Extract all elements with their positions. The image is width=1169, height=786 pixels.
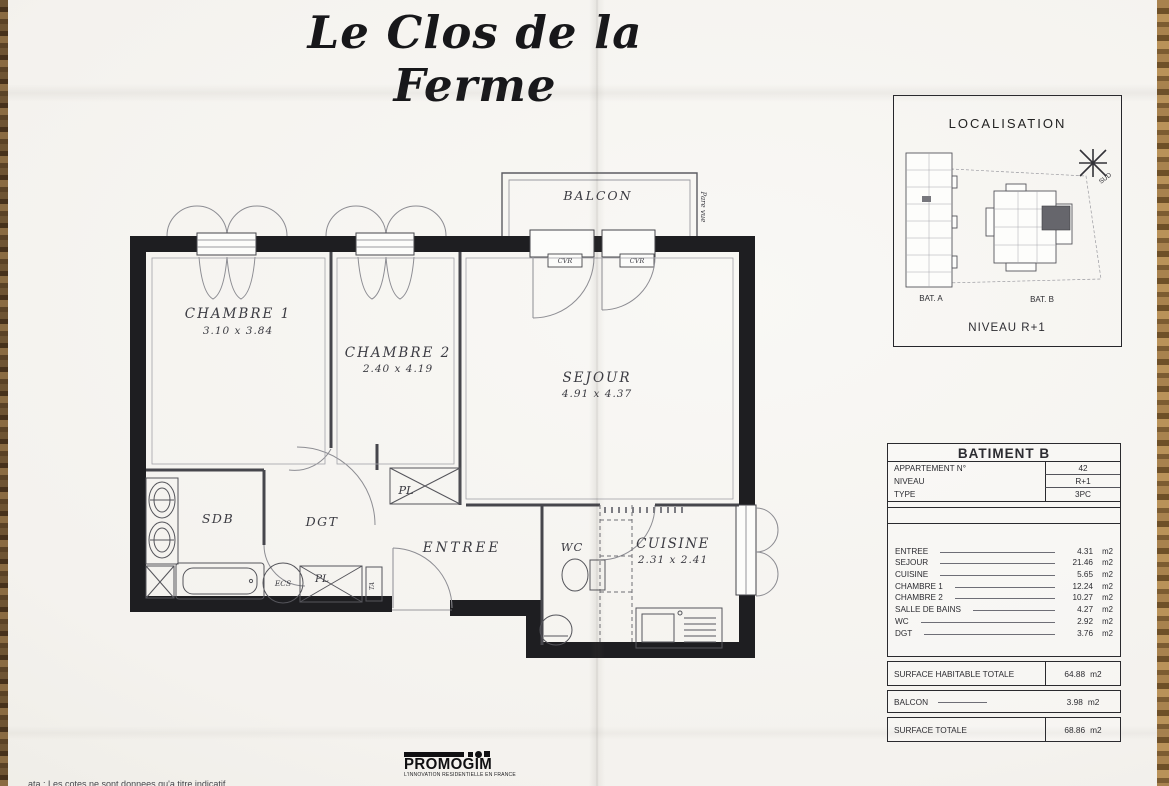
promogim-logo: PROMOGIM L'INNOVATION RESIDENTIELLE EN F… (404, 751, 500, 778)
room-area: 4.31 (1063, 547, 1093, 556)
room-area: 4.27 (1063, 605, 1093, 614)
batiment-b-table: BATIMENT B APPARTEMENT N° 42 NIVEAU R+1 … (887, 443, 1121, 742)
room-label-sdb: SDB (202, 511, 234, 526)
compass-icon (1079, 149, 1107, 177)
area-unit: m2 (1093, 593, 1113, 602)
total-number: 64.88 (1064, 669, 1085, 679)
bat-a-outline (906, 153, 957, 287)
surface-habitable-row: SURFACE HABITABLE TOTALE 64.88m2 (887, 661, 1121, 686)
room-name: DGT (895, 629, 912, 638)
brand-name: PROMOGIM (404, 757, 500, 773)
room-label-cuisine: CUISINE (636, 536, 710, 552)
area-unit: m2 (1093, 570, 1113, 579)
room-name: CUISINE (895, 570, 928, 579)
room-dims-cuisine: 2.31 x 2.41 (637, 554, 708, 566)
leader-line (940, 552, 1055, 553)
area-unit: m2 (1093, 605, 1113, 614)
scanned-floorplan-page: Le Clos de la Ferme (0, 0, 1169, 786)
room-label-chambre2: CHAMBRE 2 (345, 345, 452, 361)
info-label: APPARTEMENT N° (888, 464, 1045, 473)
table-row: CHAMBRE 210.27m2 (888, 591, 1120, 603)
leader-line (924, 634, 1055, 635)
room-label-entree: ENTREE (422, 540, 502, 556)
localisation-panel: LOCALISATION (893, 95, 1122, 347)
table-row: DGT3.76m2 (888, 626, 1120, 638)
apartment-highlight (1042, 206, 1070, 230)
area-unit: m2 (1093, 617, 1113, 626)
info-label: TYPE (888, 490, 1045, 499)
room-label-chambre1: CHAMBRE 1 (185, 306, 292, 322)
room-dims-chambre2: 2.40 x 4.19 (362, 363, 433, 375)
room-dims-chambre1: 3.10 x 3.84 (203, 325, 273, 337)
cvr-label-2: CVR (630, 257, 645, 265)
surface-totale-row: SURFACE TOTALE 68.86m2 (887, 717, 1121, 742)
table-row: APPARTEMENT N° 42 (888, 462, 1120, 475)
total-label: SURFACE TOTALE (888, 725, 1045, 735)
table-spacer (887, 507, 1121, 524)
total-value: 64.88m2 (1045, 662, 1120, 685)
table-row: TYPE 3PC (888, 488, 1120, 501)
area-unit: m2 (1093, 558, 1113, 567)
site-plan: SUD BAT. A BAT. B NIVEAU R+1 (894, 96, 1121, 346)
cropped-footnote: ata : Les cotes ne sont donnees qu'a tit… (28, 779, 225, 786)
pare-vue-label: Pare vue (699, 191, 707, 223)
area-unit: m2 (1093, 582, 1113, 591)
total-label: BALCON (888, 697, 928, 707)
total-unit: m2 (1090, 669, 1102, 679)
closet-label-pl-lower: PL (314, 573, 329, 585)
area-unit: m2 (1093, 547, 1113, 556)
room-name: CHAMBRE 2 (895, 593, 943, 602)
leader-line (940, 575, 1055, 576)
room-dims-sejour: 4.91 x 4.37 (561, 388, 632, 400)
room-label-dgt: DGT (305, 514, 339, 529)
leader-line (955, 598, 1055, 599)
ecs-label: ECS (274, 579, 291, 588)
table-row: ENTREE4.31m2 (888, 544, 1120, 556)
room-area: 2.92 (1063, 617, 1093, 626)
bat-a-core (922, 196, 931, 202)
total-value: 3.98m2 (1046, 691, 1120, 712)
room-name: ENTREE (895, 547, 928, 556)
page-title: Le Clos de la Ferme (235, 6, 715, 72)
room-label-sejour: SEJOUR (562, 370, 631, 386)
info-value: R+1 (1045, 475, 1120, 488)
leader-line (973, 610, 1055, 611)
info-label: NIVEAU (888, 477, 1045, 486)
total-number: 68.86 (1064, 725, 1085, 735)
inner-room-outlines (152, 258, 733, 499)
room-label-wc: WC (561, 540, 584, 554)
room-name: WC (895, 617, 909, 626)
exterior-walls (130, 236, 755, 658)
total-unit: m2 (1088, 697, 1100, 707)
room-area: 3.76 (1063, 629, 1093, 638)
room-area: 10.27 (1063, 593, 1093, 602)
info-value: 3PC (1045, 488, 1120, 501)
room-area: 12.24 (1063, 582, 1093, 591)
info-value: 42 (1045, 462, 1120, 475)
niveau-label: NIVEAU R+1 (968, 322, 1045, 334)
leader-line (940, 563, 1055, 564)
room-area: 21.46 (1063, 558, 1093, 567)
leader-line (938, 701, 987, 703)
table-info-section: APPARTEMENT N° 42 NIVEAU R+1 TYPE 3PC (887, 461, 1121, 502)
ta-label: TA (369, 581, 376, 590)
wc-fixtures (540, 559, 605, 645)
table-row: WC2.92m2 (888, 614, 1120, 626)
total-label: SURFACE HABITABLE TOTALE (888, 669, 1045, 679)
total-value: 68.86m2 (1045, 718, 1120, 741)
table-row: NIVEAU R+1 (888, 475, 1120, 488)
total-number: 3.98 (1067, 697, 1083, 707)
bat-a-label: BAT. A (919, 294, 943, 303)
leader-line (921, 622, 1055, 623)
table-row: CHAMBRE 112.24m2 (888, 579, 1120, 591)
room-name: SALLE DE BAINS (895, 605, 961, 614)
cvr-label-1: CVR (558, 257, 573, 265)
closet-label-pl-upper: PL (397, 483, 413, 497)
room-area: 5.65 (1063, 570, 1093, 579)
room-name: CHAMBRE 1 (895, 582, 943, 591)
room-label-balcon: BALCON (562, 188, 632, 203)
compass-sud-label: SUD (1098, 171, 1113, 185)
table-rooms-section: ENTREE4.31m2 SEJOUR21.46m2 CUISINE5.65m2… (887, 523, 1121, 657)
total-unit: m2 (1090, 725, 1102, 735)
balcon-row: BALCON 3.98m2 (887, 690, 1121, 713)
table-title: BATIMENT B (887, 443, 1121, 462)
bat-b-label: BAT. B (1030, 295, 1054, 304)
leader-line (955, 587, 1055, 588)
room-name: SEJOUR (895, 558, 928, 567)
area-unit: m2 (1093, 629, 1113, 638)
table-row: SEJOUR21.46m2 (888, 556, 1120, 568)
table-row: CUISINE5.65m2 (888, 567, 1120, 579)
table-row: SALLE DE BAINS4.27m2 (888, 602, 1120, 614)
